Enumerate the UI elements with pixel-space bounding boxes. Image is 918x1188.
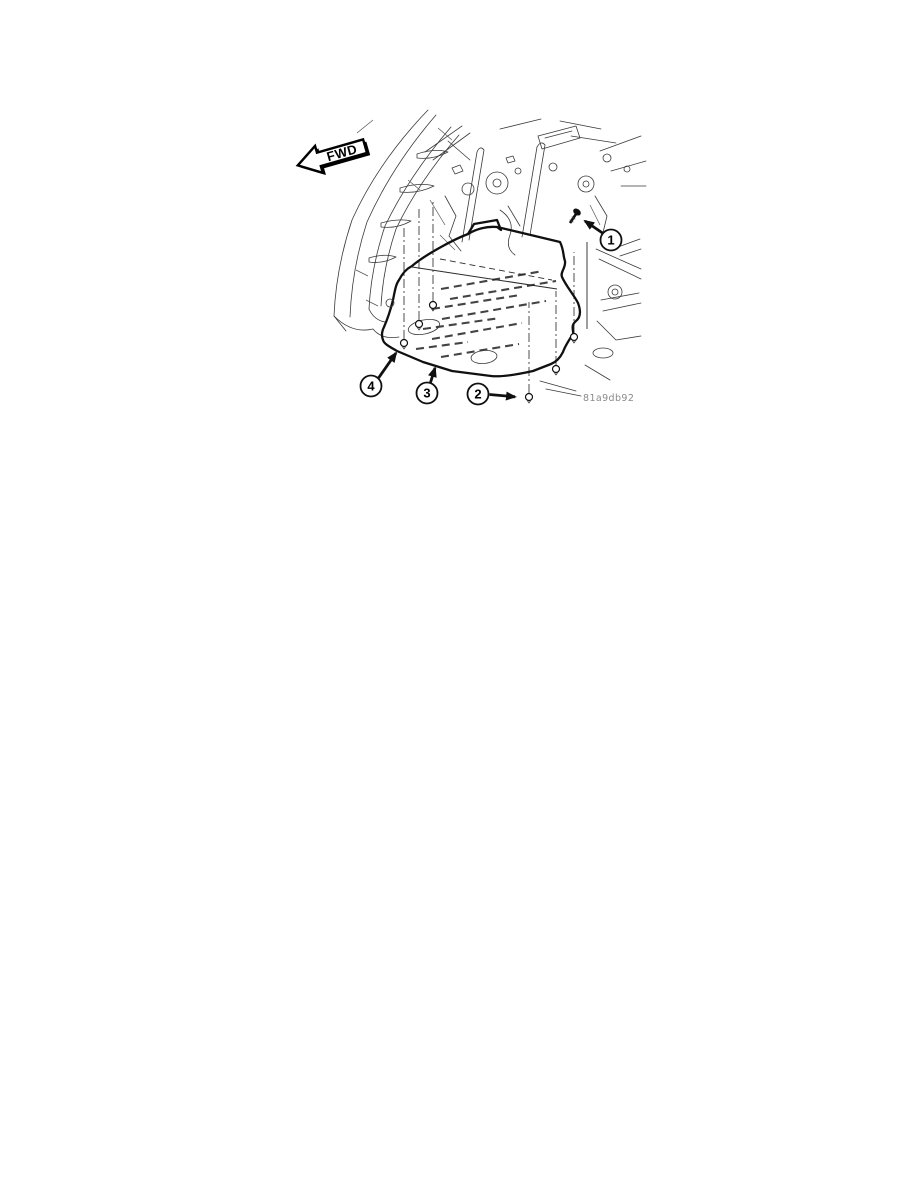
callout-4: 4: [361, 353, 397, 397]
callout-3-number: 3: [423, 386, 430, 401]
bolt: [570, 207, 582, 223]
splash-shield-slots: [416, 271, 556, 357]
splash-shield-fold-line: [412, 267, 557, 289]
figure-code-label: 81a9db92: [583, 393, 634, 404]
fastener-pin: [401, 340, 408, 350]
callout-3: 3: [417, 368, 438, 404]
callout-2-number: 2: [474, 387, 481, 402]
fastener-pin: [571, 334, 578, 344]
callout-4-arrow: [379, 353, 397, 378]
callout-1-arrow: [585, 221, 603, 233]
fastener-pin: [526, 394, 533, 404]
callout-4-number: 4: [367, 379, 375, 394]
fastener-pin: [553, 366, 560, 376]
technical-diagram: FWD 1 2 3 4 81a9db92: [0, 0, 918, 1188]
callout-2: 2: [468, 384, 516, 405]
splash-shield-outline: [382, 227, 580, 376]
callout-3-arrow: [431, 368, 436, 383]
fastener-pin: [416, 321, 423, 331]
fwd-arrow: FWD: [294, 132, 372, 182]
callout-2-arrow: [490, 395, 516, 397]
fastener-pins: [401, 207, 583, 403]
splash-shield: [382, 220, 580, 376]
callout-1: 1: [585, 221, 622, 251]
manual-page: FWD 1 2 3 4 81a9db92: [0, 0, 918, 1188]
callout-1-number: 1: [607, 233, 614, 248]
